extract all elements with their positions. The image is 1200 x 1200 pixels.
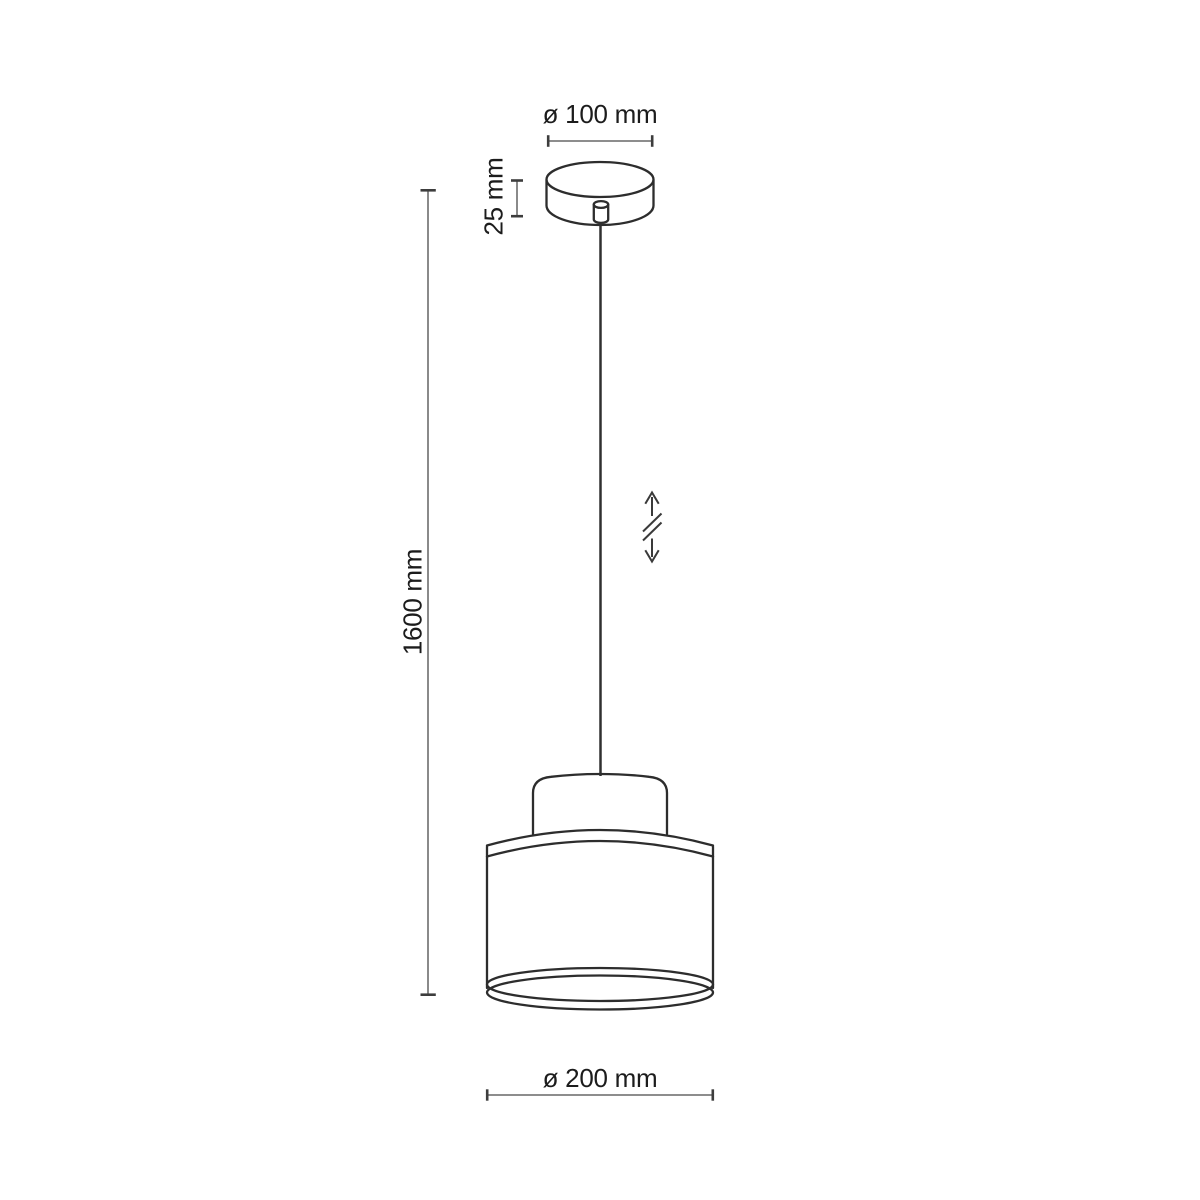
canopy-body-outline <box>547 180 654 225</box>
shade-top-cylinder <box>533 774 667 834</box>
break-slash-2 <box>643 523 662 541</box>
shade-bottom-outer-ellipse <box>487 976 713 1010</box>
height-adjustable-icon <box>643 493 662 562</box>
lamp-dimension-diagram: ø 100 mm 25 mm <box>0 0 1200 1200</box>
shade-diameter-label: ø 200 mm <box>543 1063 658 1093</box>
lamp-shade <box>487 774 713 1010</box>
canopy-top-ellipse <box>547 162 654 197</box>
shade-diameter-dimension: ø 200 mm <box>487 1063 713 1101</box>
cable-gland <box>594 201 608 223</box>
canopy-diameter-label: ø 100 mm <box>543 99 658 129</box>
total-height-label: 1600 mm <box>398 549 428 655</box>
shade-rim-upper-arc <box>487 830 713 846</box>
canopy-diameter-dimension: ø 100 mm <box>543 99 658 147</box>
total-height-dimension: 1600 mm <box>398 190 436 994</box>
break-slash-1 <box>643 514 662 532</box>
shade-bottom-inner-ellipse <box>487 968 713 1001</box>
shade-rim-lower-arc <box>487 841 713 857</box>
canopy-height-dimension: 25 mm <box>479 158 524 236</box>
canopy-height-label: 25 mm <box>479 158 509 236</box>
cable-gland-top-ellipse <box>594 201 608 208</box>
ceiling-canopy <box>547 162 654 225</box>
lamp-dimension-diagram-page: ø 100 mm 25 mm <box>0 0 1200 1200</box>
